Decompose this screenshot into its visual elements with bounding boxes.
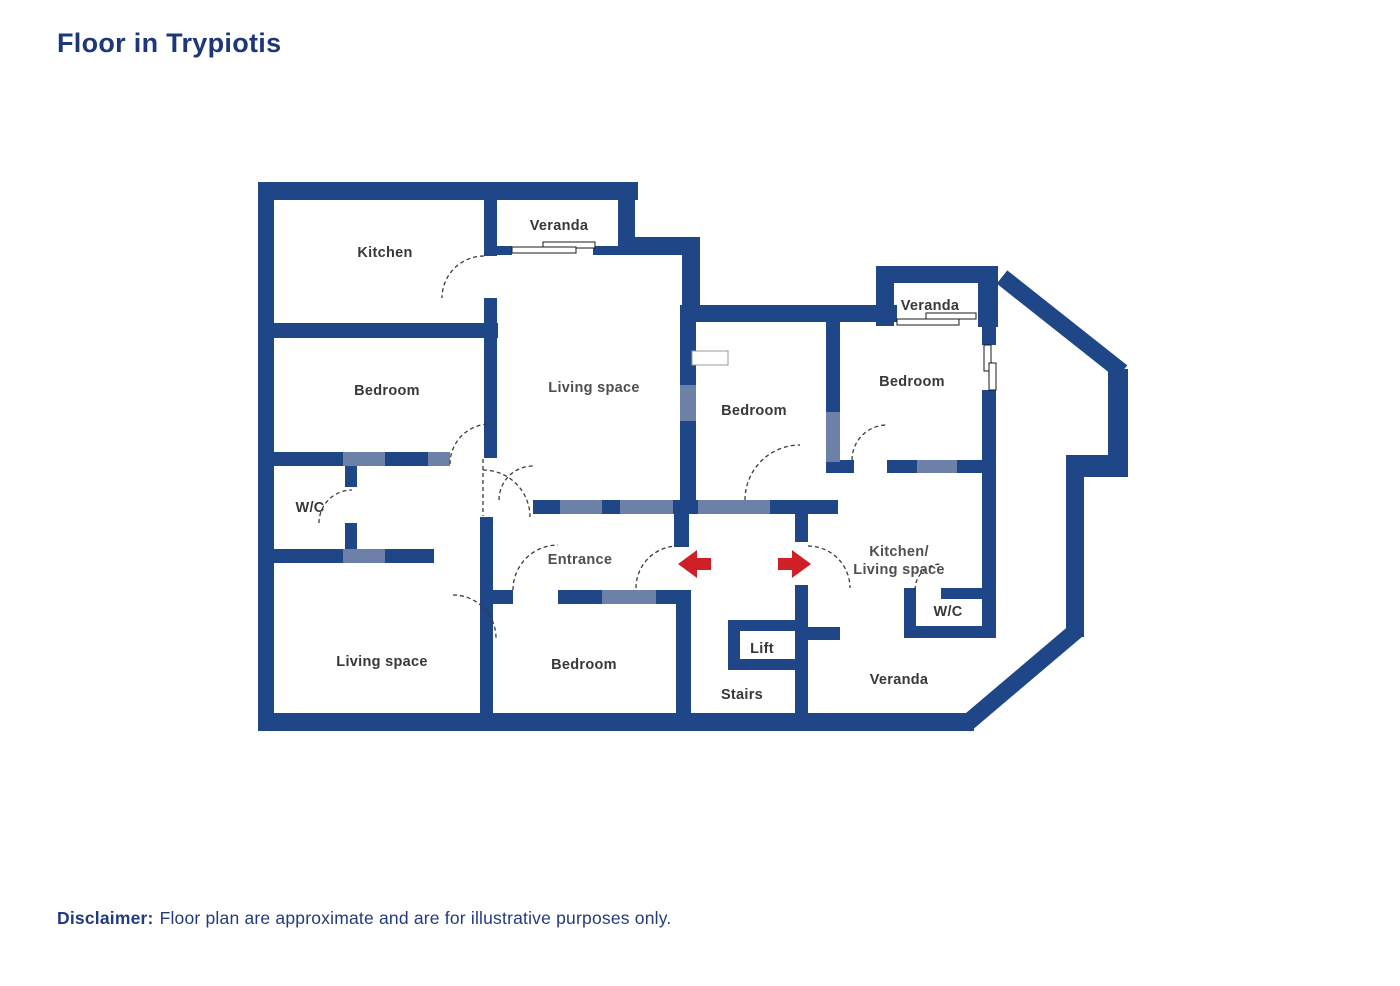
window-bedroom-right [989, 363, 996, 390]
disclaimer-label: Disclaimer: [57, 908, 154, 928]
room-label-living-main: Living space [548, 380, 639, 396]
room-label-stairs: Stairs [721, 687, 763, 703]
room-label-bedroom-middle: Bedroom [721, 403, 787, 419]
room-label-lift: Lift [750, 641, 774, 657]
room-label-wc-right: W/C [933, 604, 962, 620]
room-label-veranda-bottom: Veranda [870, 672, 929, 688]
floor-plan-svg: Kitchen Veranda Living space Bedroom W/C… [0, 0, 1400, 986]
room-label-kitchen-living-1: Kitchen/ [869, 544, 929, 560]
window-bedroom-middle [692, 351, 728, 365]
room-label-bedroom-right: Bedroom [879, 374, 945, 390]
room-label-veranda-top: Veranda [530, 218, 589, 234]
floor-plan-page: Floor in Trypiotis [0, 0, 1400, 986]
walls [258, 182, 1128, 731]
entrance-arrows [678, 550, 811, 578]
room-label-veranda-right: Veranda [901, 298, 960, 314]
room-label-wc-left: W/C [295, 500, 324, 516]
disclaimer: Disclaimer:Floor plan are approximate an… [57, 908, 671, 929]
right-arrow-icon [778, 550, 811, 578]
left-arrow-icon [678, 550, 711, 578]
disclaimer-text: Floor plan are approximate and are for i… [160, 908, 672, 928]
window-veranda-right [897, 319, 959, 325]
room-label-bedroom-left: Bedroom [354, 383, 420, 399]
room-label-kitchen-living-2: Living space [853, 562, 944, 578]
room-label-bedroom-bottom: Bedroom [551, 657, 617, 673]
room-label-living-lower: Living space [336, 654, 427, 670]
room-label-entrance: Entrance [548, 552, 612, 568]
room-label-kitchen: Kitchen [357, 245, 412, 261]
window-veranda-top [512, 247, 576, 253]
